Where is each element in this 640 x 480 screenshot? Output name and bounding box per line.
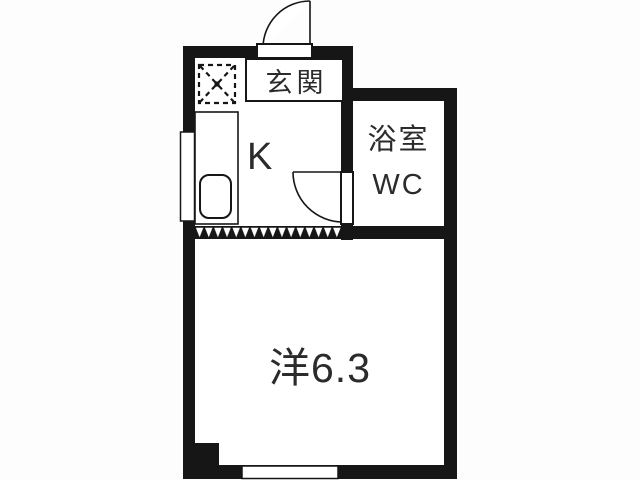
right-wall (444, 88, 457, 479)
kitchen-sink (200, 175, 231, 218)
bottom-window (242, 466, 338, 479)
main-room-label: 洋6.3 (183, 334, 457, 394)
left-wall (183, 46, 195, 479)
accordion-partition (195, 226, 341, 239)
floor-areas (183, 46, 457, 479)
bathroom-label-line2: WC (353, 163, 444, 208)
bathroom-bottom-wall (341, 226, 457, 239)
left-window (181, 132, 195, 221)
entrance-label-box: 玄関 (245, 58, 344, 102)
bathroom-label-line1: 浴室 (353, 118, 444, 163)
entrance-door-leaf (257, 44, 312, 58)
floor-plan: 玄関 K 浴室 WC 洋6.3 (0, 0, 640, 480)
corner-pillar (183, 443, 219, 479)
bathroom-top-wall (351, 88, 457, 101)
kitchen-label: K (247, 136, 272, 179)
entrance-door-swing (257, 1, 312, 58)
bathroom-label: 浴室 WC (353, 118, 444, 208)
bathroom-door-leaf (341, 172, 353, 224)
entrance-label: 玄関 (266, 61, 328, 100)
washing-machine-center-dot (214, 81, 219, 86)
